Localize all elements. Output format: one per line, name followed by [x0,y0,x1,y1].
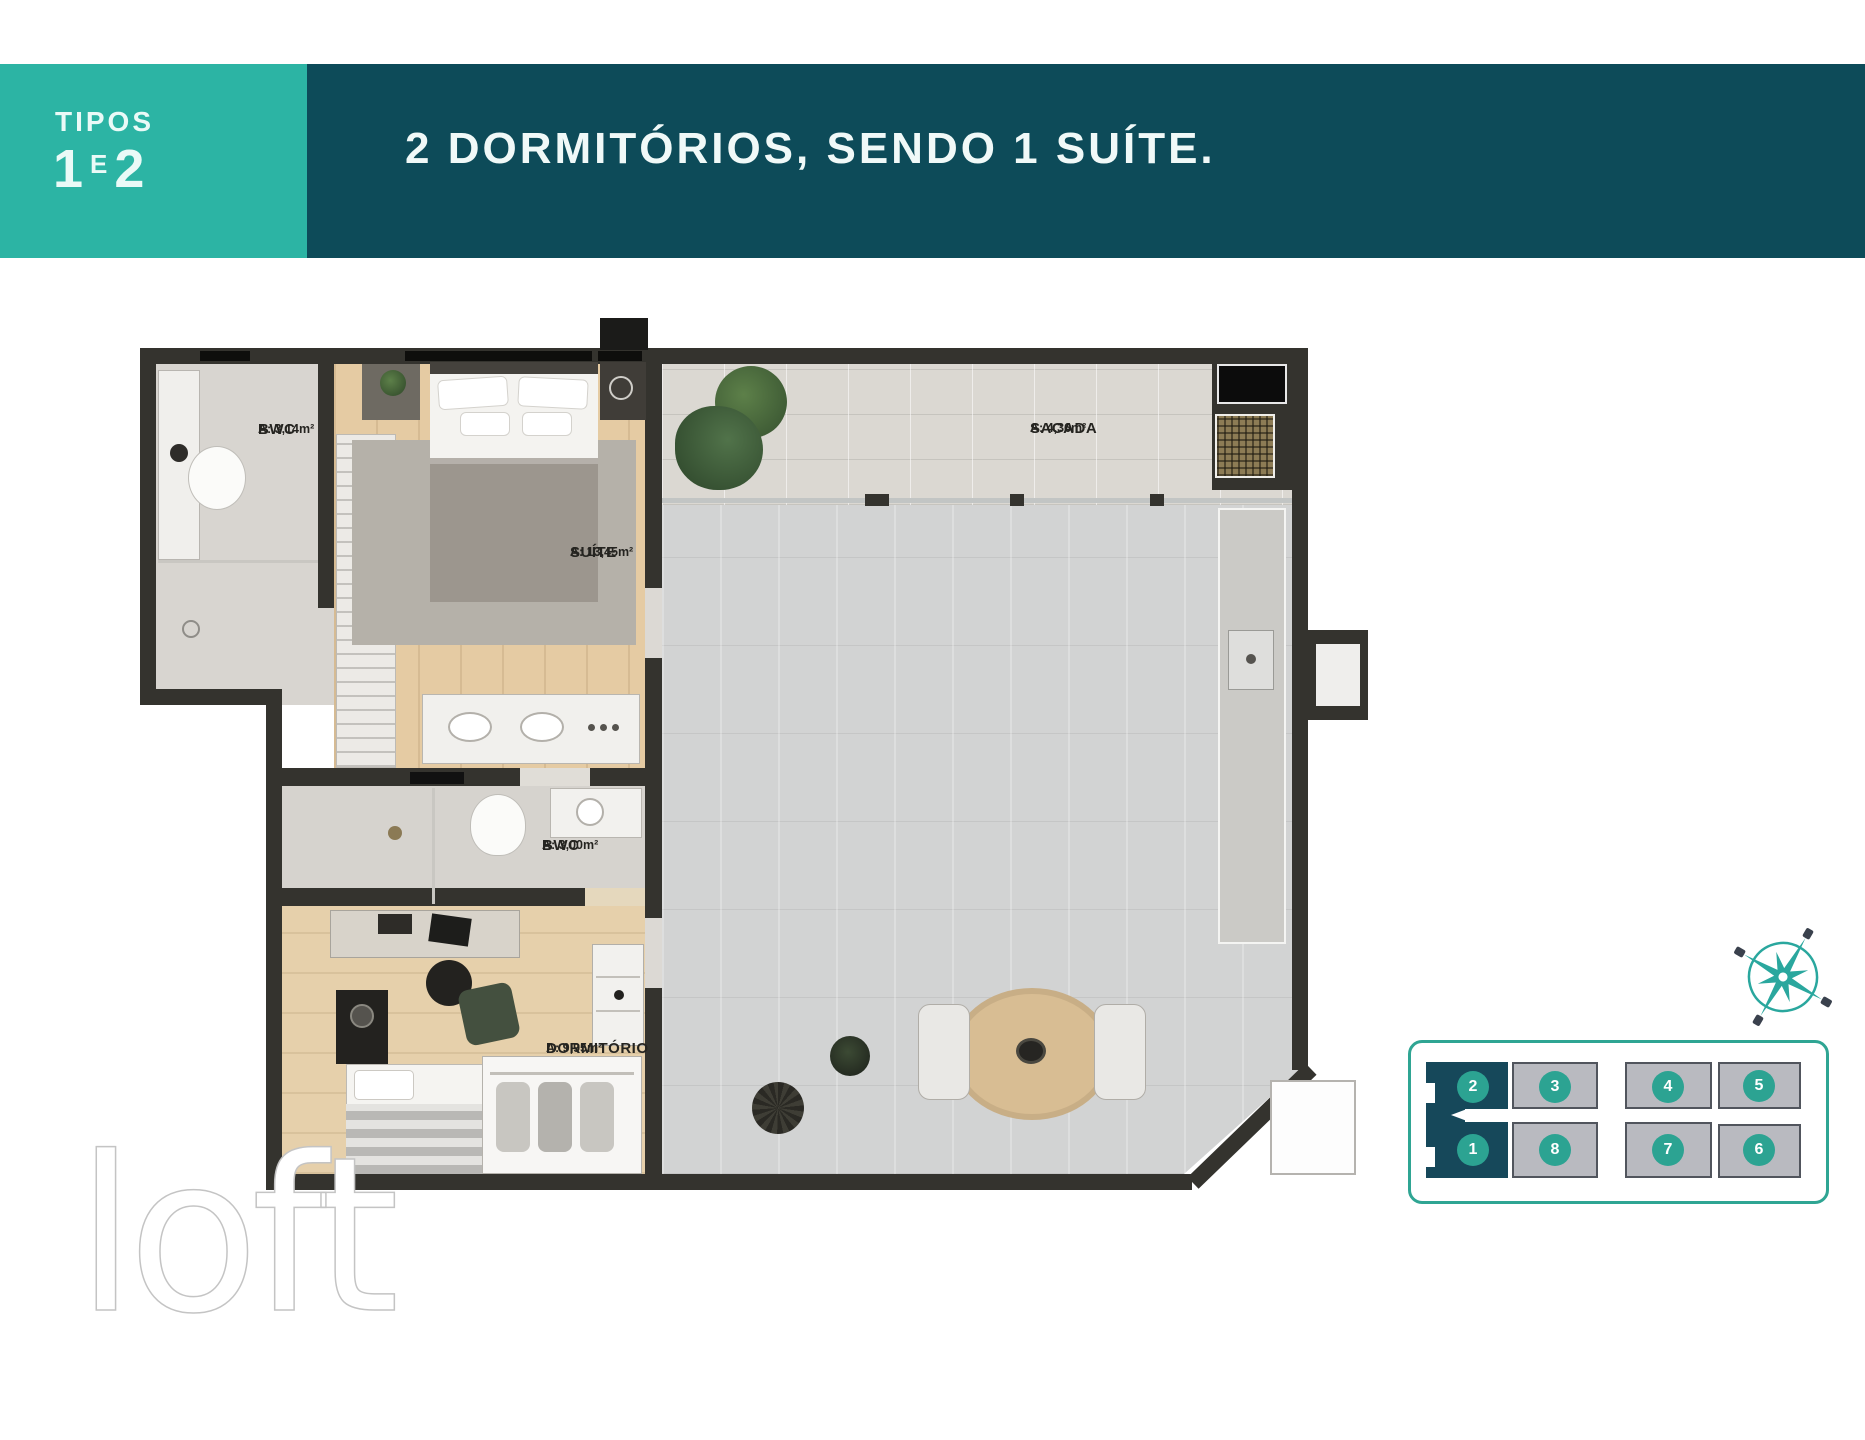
kitchen-faucet [1246,654,1256,664]
drawer-line [596,1010,640,1012]
type-tag-numbers: 1E2 [53,142,144,196]
door-frame [865,494,889,506]
sliding-glass-door [662,498,1292,503]
doormat [1217,364,1287,404]
bed-blanket [430,458,598,602]
door-mullion [1150,494,1164,506]
laptop [428,913,472,946]
desk [330,910,520,958]
unit-number-badge: 2 [1457,1071,1489,1103]
building-key-plan: 2 3 4 5 1 8 7 6 [1408,1040,1829,1204]
hanging-clothes [496,1082,530,1152]
bed-headboard [430,362,598,374]
kitchen-counter [1218,508,1286,944]
door-opening [585,888,645,906]
unit-number-badge: 8 [1539,1134,1571,1166]
pillow [437,376,509,411]
window [598,351,642,361]
corridor-arrow-left [1451,1109,1467,1121]
toiletry-bottle [600,724,607,731]
table-lamp [350,1004,374,1028]
title-banner: 2 DORMITÓRIOS, SENDO 1 SUÍTE. [307,64,1865,258]
armchair [457,981,521,1047]
wall-bwc-bottom [140,689,282,705]
corridor-arrow-right [1791,1109,1807,1121]
wall-suite-bottom [282,768,662,786]
exterior-box [1270,1080,1356,1175]
pillow [354,1070,414,1100]
drawer-line [596,976,640,978]
door-opening [520,768,590,786]
dining-chair [918,1004,970,1100]
unit-number-badge: 3 [1539,1071,1571,1103]
type-tag: TIPOS 1E2 [0,64,307,258]
unit-number-badge: 6 [1743,1134,1775,1166]
window-box [600,318,648,350]
dining-chair [1094,1004,1146,1100]
unit-number-badge: 5 [1743,1070,1775,1102]
shower-drain [182,620,200,638]
desk-object [378,914,412,934]
type-tag-label: TIPOS [55,106,154,138]
wall-niche [410,772,464,784]
toilet [188,446,246,510]
potted-plant [830,1036,870,1076]
page-title: 2 DORMITÓRIOS, SENDO 1 SUÍTE. [405,124,1216,174]
balcony-plant [675,406,763,490]
window [200,351,250,361]
compass-icon [1728,922,1838,1032]
plan-notch [1426,1083,1435,1103]
type-conjunction: E [90,149,107,179]
unit-number-badge: 4 [1652,1071,1684,1103]
hanging-clothes [580,1082,614,1152]
type-number-2: 2 [114,139,144,199]
shower-head [388,826,402,840]
vanity-sink [520,712,564,742]
wall-left-upper [140,348,156,705]
door-opening [645,588,662,658]
shower-glass [158,560,318,563]
vanity-sink [448,712,492,742]
wall-top [140,348,1308,364]
type-number-1: 1 [53,139,83,199]
unit-number-badge: 7 [1652,1134,1684,1166]
shower-glass [432,788,435,904]
door-opening [645,918,662,988]
bathroom-sink [576,798,604,826]
floor-lamp [752,1082,804,1134]
wall-right [1292,348,1308,1070]
pillow [522,412,572,436]
table-centerpiece [1016,1038,1046,1064]
toiletry-bottle [588,724,595,731]
toilet [470,794,526,856]
floor-plan: BWC A: 3,14m² SUÍTE A: 13,45m² SACADA A:… [130,348,1380,1208]
wall-suite-bathroom [318,364,334,608]
window [405,351,592,361]
door-mullion [1010,494,1024,506]
wardrobe-rail [490,1072,634,1075]
entry-door [1316,644,1360,706]
nightstand-plant [380,370,406,396]
wicker-box [1215,414,1275,478]
corridor [1465,1109,1791,1122]
wall-bottom [266,1174,1192,1190]
pillow [517,376,588,410]
bathroom-sink [170,444,188,462]
toiletry-bottle [612,724,619,731]
loft-watermark: loft [76,1128,392,1343]
plan-notch [1426,1147,1435,1167]
pillow [460,412,510,436]
dresser-handle [614,990,624,1000]
unit-number-badge: 1 [1457,1134,1489,1166]
round-tray [609,376,633,400]
hanging-clothes [538,1082,572,1152]
